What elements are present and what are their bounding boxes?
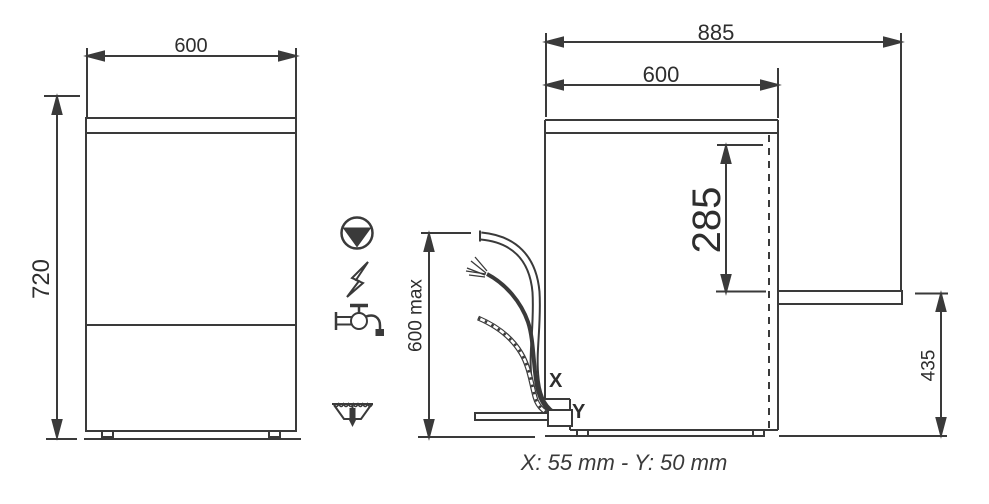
connection-box [548, 410, 572, 426]
service-connections [466, 231, 572, 427]
side-view-outline [545, 120, 947, 436]
side-overall-depth-label: 885 [666, 22, 766, 44]
installation-diagram: 600 720 885 600 285 435 600 max X Y X: 5… [0, 0, 989, 504]
front-width-dimension [87, 48, 296, 117]
diagram-linework [0, 0, 989, 504]
drain-outlet-pipe [778, 291, 902, 304]
floor-drain-icon [332, 404, 373, 427]
hose-reach-dimension [418, 233, 535, 437]
front-view-outline [84, 118, 301, 439]
drain-pump-icon [342, 218, 373, 249]
water-tap-icon [336, 306, 384, 337]
cable-fray-wires [466, 257, 487, 277]
side-outlet-height-label: 435 [920, 331, 939, 401]
inlet-pipe-stub [475, 413, 549, 420]
electric-supply-icon [347, 262, 368, 297]
front-width-label: 600 [141, 36, 241, 56]
hose-reach-label: 600 max [407, 271, 426, 361]
y-point-label: Y [572, 402, 585, 422]
power-cable [466, 257, 557, 416]
side-drain-span-label: 285 [687, 165, 727, 275]
front-height-label: 720 [30, 239, 54, 319]
utility-icons [332, 218, 384, 428]
side-cabinet-depth-label: 600 [611, 64, 711, 86]
xy-dimensions-caption: X: 55 mm - Y: 50 mm [449, 452, 799, 474]
x-point-label: X [549, 371, 562, 391]
